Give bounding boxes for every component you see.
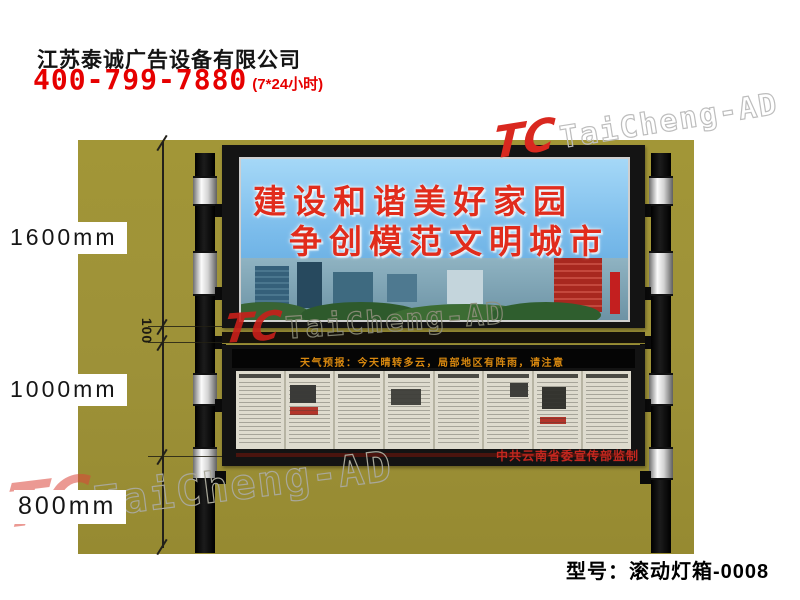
right-pole bbox=[651, 153, 671, 553]
phone-row: 400-799-7880(7*24小时) bbox=[33, 63, 323, 96]
pole-band bbox=[649, 373, 673, 406]
newspaper-page bbox=[286, 371, 334, 449]
building bbox=[333, 272, 373, 304]
pole-band bbox=[193, 373, 217, 406]
model-number: 型号：滚动灯箱-0008 bbox=[566, 555, 769, 584]
newspaper-page bbox=[236, 371, 284, 449]
pole-band bbox=[193, 251, 217, 296]
pole-band bbox=[193, 176, 217, 206]
led-ticker-strip: 天气预报：今天晴转多云，局部地区有阵雨，请注意 bbox=[232, 349, 635, 368]
slogan-line-2: 争创模范文明城市 bbox=[289, 215, 630, 263]
scrolling-lightbox: 天气预报：今天晴转多云，局部地区有阵雨，请注意 中共云南省委宣传部监制 bbox=[222, 345, 645, 466]
dimension-label-gap: 100 bbox=[137, 309, 155, 353]
building bbox=[447, 270, 483, 304]
dimension-label-1600mm: 1600mm bbox=[6, 222, 127, 254]
left-pole bbox=[195, 153, 215, 553]
dimension-label-800mm: 800mm bbox=[14, 490, 126, 524]
pole-bracket bbox=[215, 471, 226, 484]
pole-band bbox=[193, 447, 217, 480]
newspaper-page bbox=[583, 371, 631, 449]
service-hours-note: (7*24小时) bbox=[252, 76, 323, 93]
cityscape bbox=[241, 258, 628, 320]
supervisor-credit: 中共云南省委宣传部监制 bbox=[496, 447, 639, 464]
pole-band bbox=[649, 447, 673, 480]
mounting-rail bbox=[222, 331, 645, 344]
dimension-label-1000mm: 1000mm bbox=[6, 374, 127, 406]
pole-band bbox=[649, 176, 673, 206]
billboard-poster: 建设和谐美好家园 争创模范文明城市 bbox=[239, 157, 630, 322]
newspaper-display bbox=[236, 371, 631, 449]
newspaper-page bbox=[534, 371, 582, 449]
building bbox=[387, 274, 417, 302]
building bbox=[297, 262, 322, 308]
dimension-line bbox=[162, 142, 164, 548]
red-banner bbox=[610, 272, 620, 314]
pole-band bbox=[649, 251, 673, 296]
billboard-lightbox: 建设和谐美好家园 争创模范文明城市 bbox=[222, 145, 645, 328]
newspaper-page bbox=[484, 371, 532, 449]
phone-number: 400-799-7880 bbox=[33, 63, 247, 96]
building bbox=[255, 266, 289, 304]
pole-bracket bbox=[640, 471, 651, 484]
led-ticker-text: 天气预报：今天晴转多云，局部地区有阵雨，请注意 bbox=[300, 354, 565, 368]
newspaper-page bbox=[435, 371, 483, 449]
newspaper-page bbox=[385, 371, 433, 449]
newspaper-page bbox=[335, 371, 383, 449]
product-photo: 100 建设和谐美好家园 争创模范文明城市 bbox=[78, 140, 694, 554]
trees bbox=[491, 302, 601, 322]
